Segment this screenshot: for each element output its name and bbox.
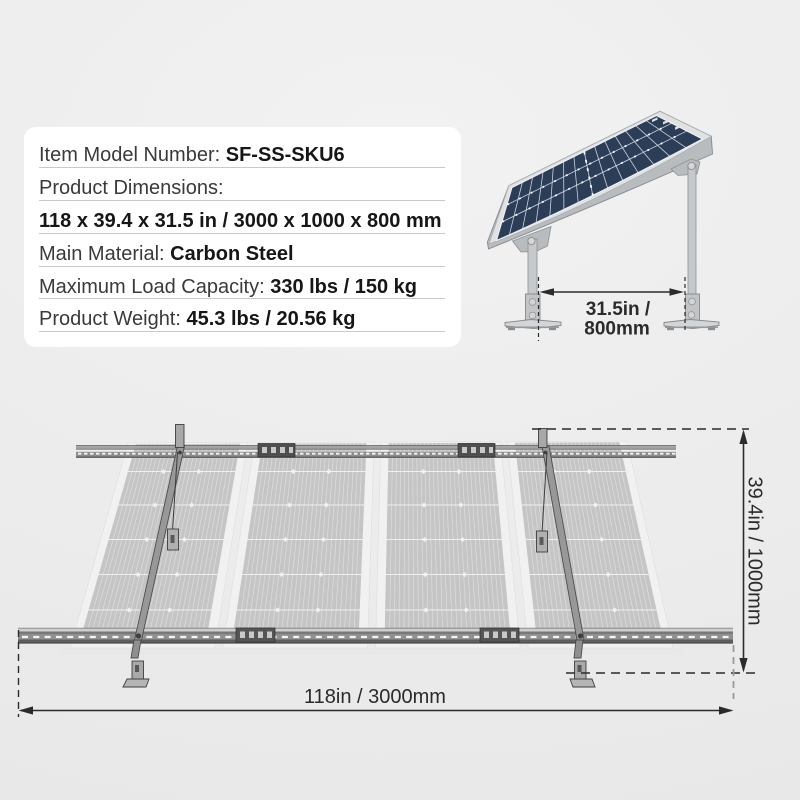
svg-text:800mm: 800mm — [584, 319, 650, 340]
svg-text:31.5in /: 31.5in / — [586, 299, 651, 320]
svg-text:39.4in / 1000mm: 39.4in / 1000mm — [744, 477, 766, 626]
svg-text:118in / 3000mm: 118in / 3000mm — [304, 686, 446, 708]
